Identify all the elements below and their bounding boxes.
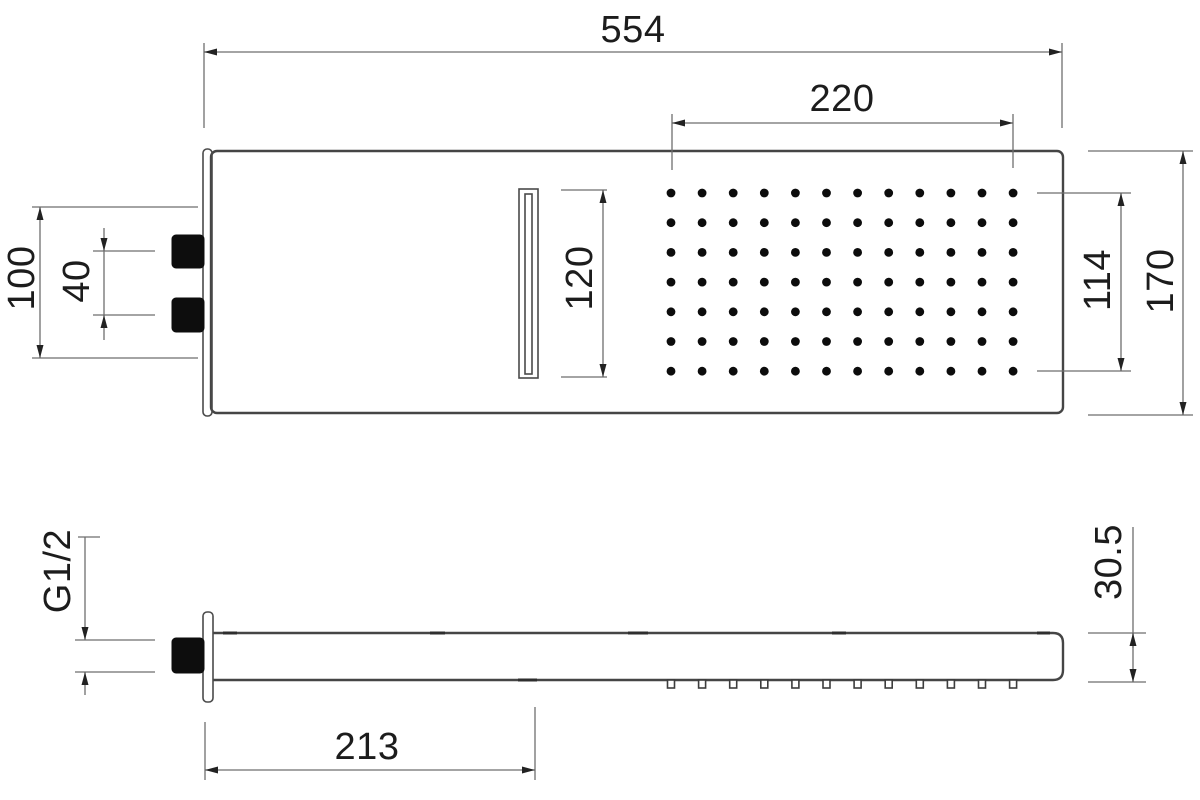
- dim-mount-span-label: 100: [3, 246, 41, 311]
- dim-inlet-spacing-label: 40: [58, 259, 96, 302]
- side-view: [75, 527, 1146, 780]
- inlet-block-side: [172, 638, 204, 673]
- dim-spray-width-label: 220: [810, 80, 875, 118]
- dim-spray-depth-label: 114: [1079, 249, 1117, 311]
- spray-dot-grid: [667, 189, 1018, 376]
- shower-body-outline: [211, 151, 1063, 413]
- dim-inlet-thread: [75, 537, 155, 695]
- dim-spray-width: [672, 114, 1013, 170]
- technical-drawing-page: 554 220 120 100 40 114 170 G1/2 213 30.5: [0, 0, 1200, 800]
- dim-overall-width-label: 554: [601, 11, 666, 49]
- drawing-canvas: [0, 0, 1200, 800]
- body-profile: [213, 633, 1063, 680]
- top-view: [32, 43, 1193, 416]
- waterfall-slot: [519, 189, 538, 378]
- dim-slot-offset-label: 213: [335, 728, 400, 766]
- water-inlet-block-bottom: [172, 298, 204, 332]
- dim-overall-depth-label: 170: [1142, 249, 1180, 314]
- dim-overall-width: [204, 43, 1062, 128]
- dim-inlet-thread-label: G1/2: [39, 529, 77, 613]
- water-inlet-block-top: [172, 235, 204, 268]
- dim-inlet-spacing: [93, 228, 155, 340]
- dim-thickness-label: 30.5: [1090, 524, 1128, 600]
- dim-slot-length-label: 120: [561, 246, 599, 311]
- seam-marks: [223, 633, 1050, 680]
